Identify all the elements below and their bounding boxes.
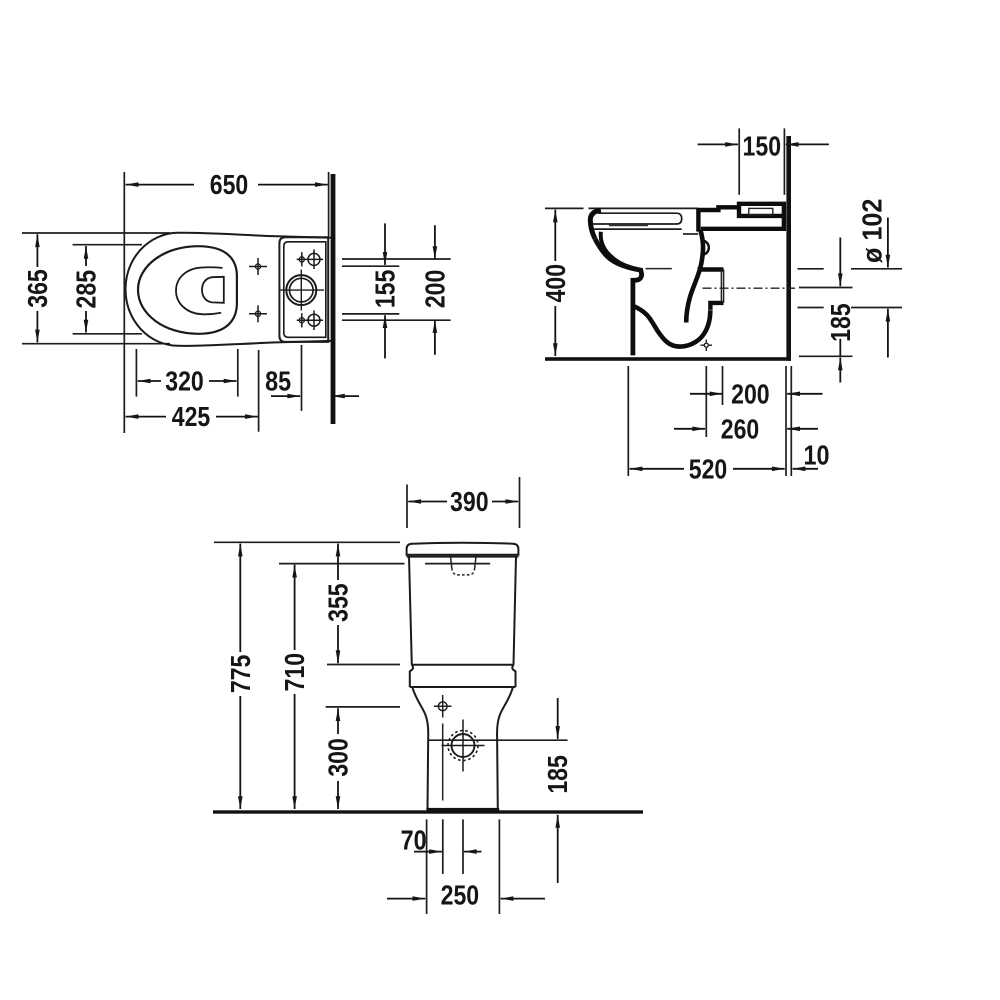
svg-text:70: 70 xyxy=(401,824,427,855)
svg-text:150: 150 xyxy=(743,131,782,162)
svg-text:520: 520 xyxy=(689,453,728,484)
svg-text:390: 390 xyxy=(450,486,489,517)
svg-text:185: 185 xyxy=(542,755,573,794)
svg-text:10: 10 xyxy=(804,440,830,471)
svg-text:185: 185 xyxy=(825,303,856,342)
svg-text:365: 365 xyxy=(22,269,53,308)
svg-text:200: 200 xyxy=(419,270,450,309)
svg-text:400: 400 xyxy=(540,264,571,303)
svg-text:250: 250 xyxy=(441,879,480,910)
svg-text:260: 260 xyxy=(721,414,760,445)
svg-text:ø 102: ø 102 xyxy=(856,199,887,263)
svg-text:710: 710 xyxy=(279,653,310,692)
svg-text:775: 775 xyxy=(225,655,256,694)
svg-text:320: 320 xyxy=(165,366,204,397)
svg-text:300: 300 xyxy=(323,738,354,777)
svg-text:200: 200 xyxy=(731,379,770,410)
svg-text:85: 85 xyxy=(265,366,291,397)
svg-text:285: 285 xyxy=(71,270,102,309)
svg-text:355: 355 xyxy=(323,583,354,622)
svg-text:425: 425 xyxy=(172,401,211,432)
svg-text:650: 650 xyxy=(210,169,249,200)
svg-text:155: 155 xyxy=(370,270,401,309)
